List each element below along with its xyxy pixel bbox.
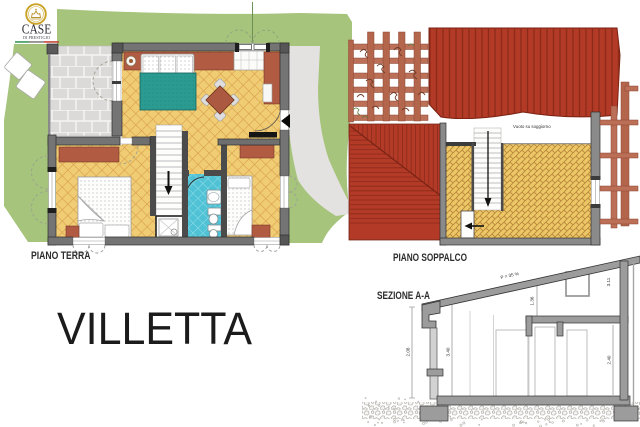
svg-text:2.40: 2.40: [607, 355, 612, 364]
svg-text:2.08: 2.08: [406, 347, 411, 356]
svg-text:Vuoto su soggiorno: Vuoto su soggiorno: [513, 124, 551, 129]
svg-text:SEZIONE A-A: SEZIONE A-A: [377, 290, 430, 302]
svg-text:PIANO SOPPALCO: PIANO SOPPALCO: [393, 252, 467, 264]
svg-text:VILLETTA: VILLETTA: [57, 303, 252, 354]
svg-text:PIANO TERRA: PIANO TERRA: [31, 250, 91, 262]
svg-text:3.40: 3.40: [446, 347, 451, 356]
svg-text:DI PRESTIGIO: DI PRESTIGIO: [23, 35, 50, 40]
svg-text:3.11: 3.11: [606, 277, 611, 286]
svg-text:1.36: 1.36: [530, 296, 535, 305]
